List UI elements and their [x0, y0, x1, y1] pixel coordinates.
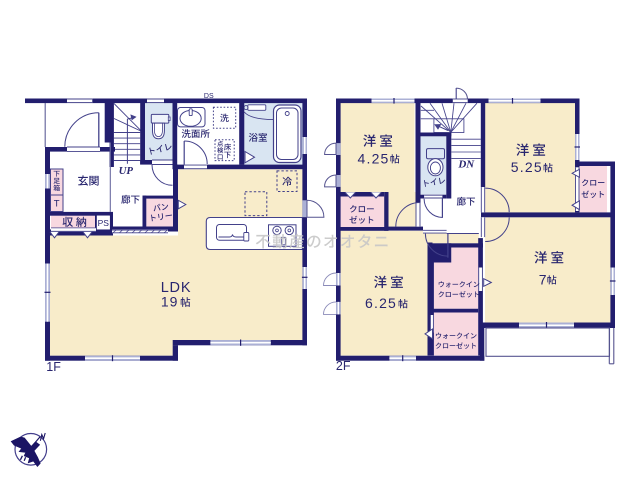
svg-text:T: T	[54, 199, 60, 210]
svg-text:2F: 2F	[336, 359, 351, 373]
svg-text:4.25: 4.25	[358, 150, 390, 166]
svg-text:UP: UP	[119, 165, 134, 177]
svg-text:19: 19	[161, 294, 179, 310]
svg-text:DS: DS	[204, 93, 214, 100]
svg-text:PS: PS	[98, 218, 110, 228]
svg-text:1F: 1F	[46, 360, 61, 374]
svg-text:7: 7	[539, 271, 547, 287]
svg-text:DN: DN	[457, 158, 475, 170]
svg-text:5.25: 5.25	[511, 159, 543, 175]
svg-text:6.25: 6.25	[365, 295, 397, 311]
